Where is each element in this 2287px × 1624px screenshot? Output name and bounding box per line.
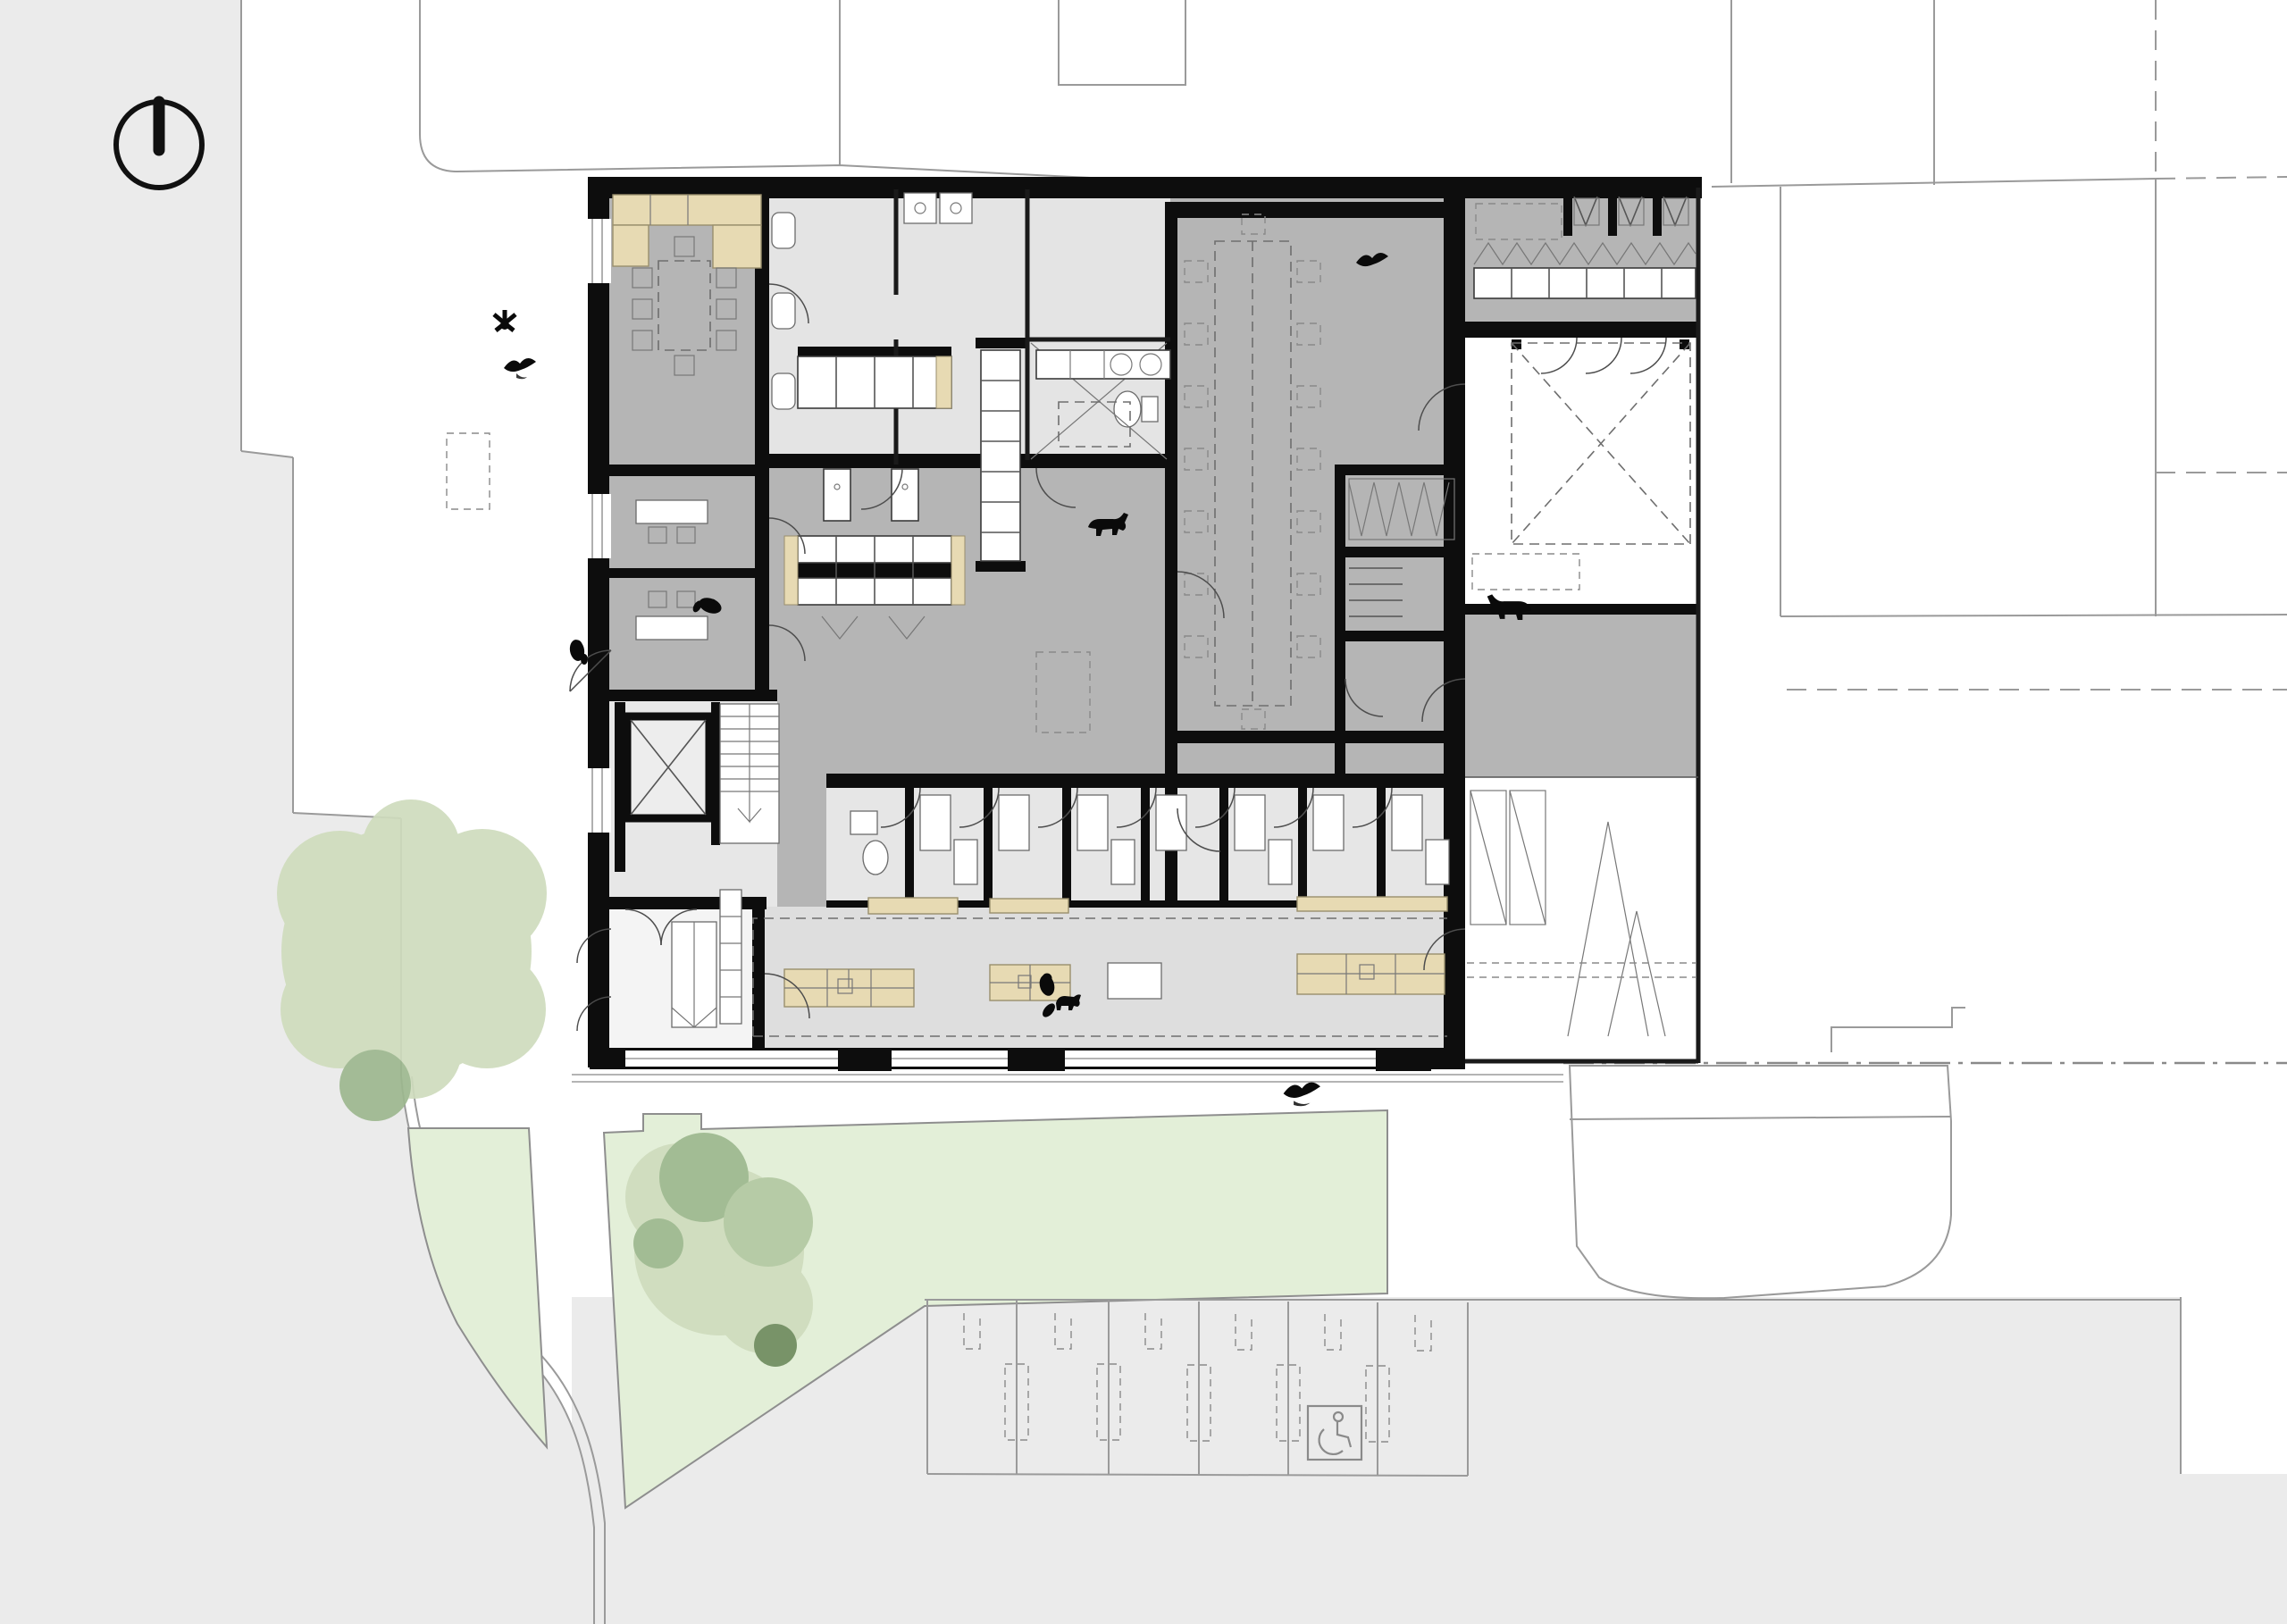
floor-garage — [1465, 777, 1700, 1061]
large-tree — [277, 799, 547, 1099]
person-icon — [568, 639, 588, 665]
washer-counter — [1036, 350, 1170, 379]
stair — [720, 704, 779, 843]
south-storefront — [625, 1051, 1376, 1067]
elevator — [627, 716, 709, 818]
neighbor-building-outline — [1570, 1066, 1951, 1298]
bird-icon — [504, 358, 536, 379]
plant-icon — [494, 310, 515, 331]
site-plan-canvas — [0, 0, 2287, 1624]
consult-wc — [863, 841, 888, 875]
cabinet-column — [720, 890, 741, 1024]
floor-courtyard — [1465, 339, 1700, 615]
waiting-table — [1108, 963, 1161, 999]
cage-column — [981, 350, 1020, 561]
small-dark-tree — [339, 1050, 411, 1121]
floor-plan-drawing — [0, 0, 2287, 1624]
cage-bank-north — [798, 356, 951, 408]
neighbor-step-outline — [1831, 1008, 1965, 1052]
sidewalk-marking — [447, 433, 490, 509]
bird-icon — [1284, 1083, 1320, 1107]
floor-sanitary-core — [761, 189, 1170, 465]
floor-east-passage — [1465, 615, 1700, 777]
